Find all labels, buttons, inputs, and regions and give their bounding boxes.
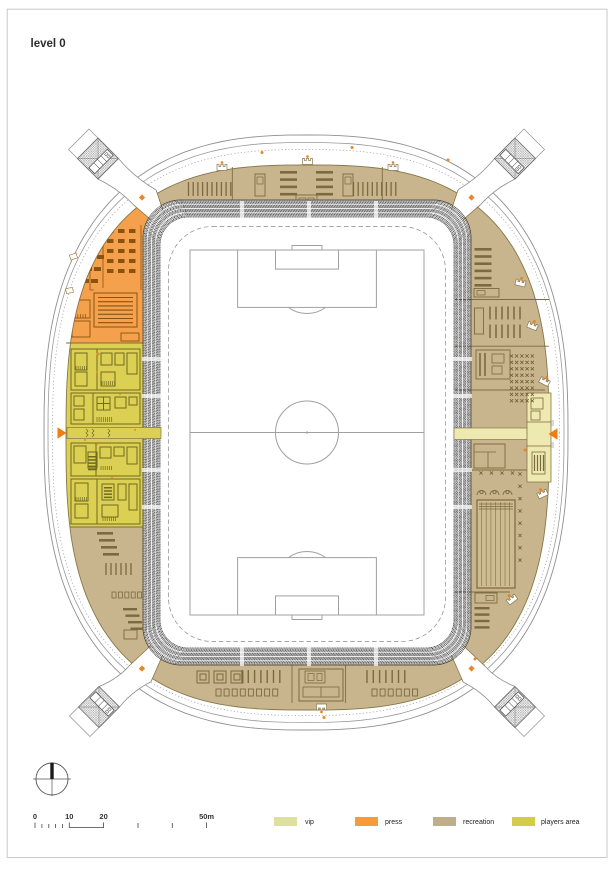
svg-text:press: press <box>385 819 403 826</box>
svg-text:50m: 50m <box>199 812 214 821</box>
svg-text:10: 10 <box>65 812 73 821</box>
svg-text:20: 20 <box>99 812 107 821</box>
svg-text:players area: players area <box>541 819 580 826</box>
svg-text:level 0: level 0 <box>31 38 66 50</box>
svg-text:vip: vip <box>305 819 314 826</box>
svg-text:0: 0 <box>33 812 37 821</box>
svg-text:recreation: recreation <box>463 819 494 826</box>
